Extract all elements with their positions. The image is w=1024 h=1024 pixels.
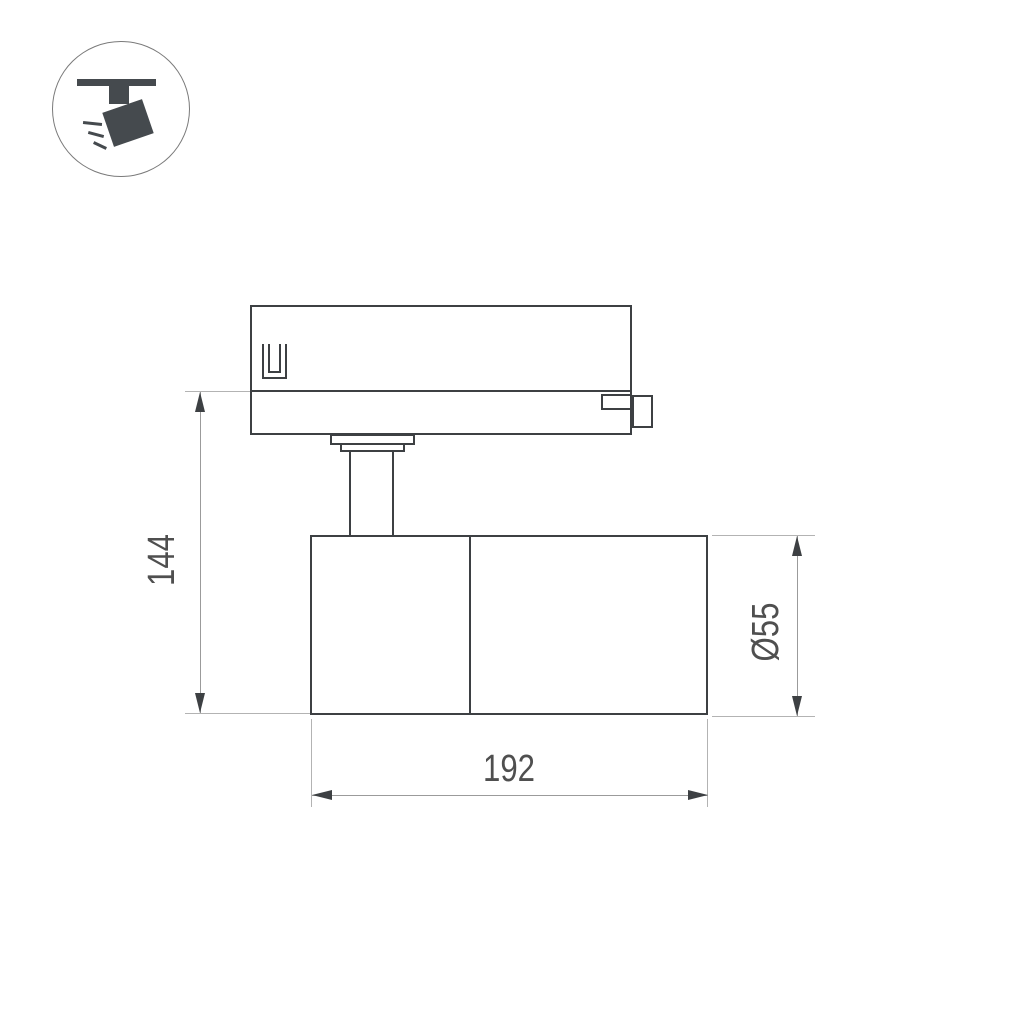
arrowhead-down-icon	[792, 696, 802, 716]
length-dimension-label: 192	[468, 749, 550, 789]
latch-tab	[632, 395, 653, 428]
height-extension-line-bottom	[185, 713, 310, 714]
arrowhead-left-icon	[312, 790, 332, 800]
diameter-dimension-line	[797, 536, 798, 716]
stem	[349, 450, 394, 536]
light-ray-icon	[83, 121, 102, 126]
latch-slot	[601, 394, 632, 410]
height-dimension-line	[200, 392, 201, 713]
diameter-extension-line-bottom	[712, 716, 815, 717]
lamp-head-seam-line	[469, 535, 471, 715]
arrowhead-down-icon	[195, 693, 205, 713]
length-dimension-line	[312, 795, 708, 796]
spotlight-stem-icon	[109, 85, 129, 104]
track-adapter-body	[250, 305, 632, 435]
lamp-head-body	[310, 535, 708, 715]
arrowhead-right-icon	[688, 790, 708, 800]
contact-clip-inner	[268, 344, 281, 373]
contact-clip	[262, 344, 287, 379]
light-ray-icon	[88, 131, 104, 138]
spotlight-head-icon	[102, 99, 153, 147]
track-adapter-split-line	[250, 390, 632, 392]
track-light-category-badge	[52, 41, 190, 177]
arrowhead-up-icon	[792, 536, 802, 556]
technical-drawing-canvas: 144 Ø55 192	[0, 0, 1024, 1024]
light-ray-icon	[93, 141, 107, 150]
diameter-dimension-label: Ø55	[746, 591, 786, 673]
height-dimension-label: 144	[142, 519, 182, 601]
arrowhead-up-icon	[195, 392, 205, 412]
